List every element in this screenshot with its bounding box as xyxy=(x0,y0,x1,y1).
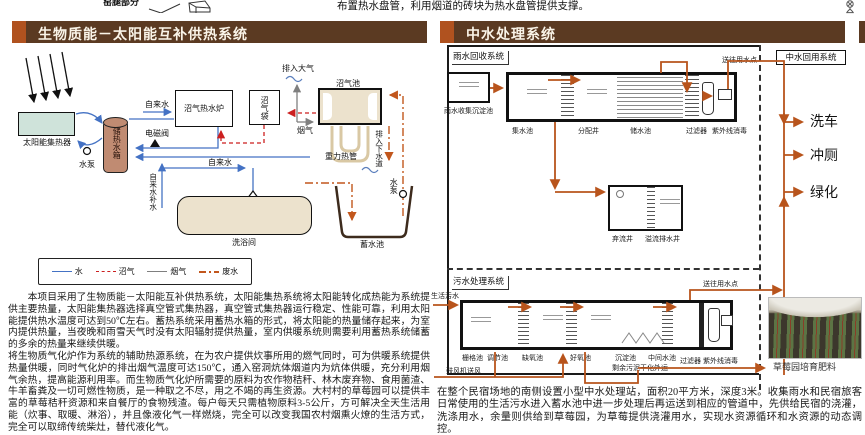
pump-right-icon xyxy=(400,191,407,198)
storage-pool-label: 蓄水池 xyxy=(360,240,384,249)
legend-biogas-line xyxy=(96,271,116,272)
legend-flue-line xyxy=(147,271,167,272)
legend-item-water: 水 xyxy=(52,267,83,276)
legend-water-line xyxy=(52,271,72,272)
flue-gas-label: 烟气 xyxy=(297,126,313,135)
left-body-text: 本项目采用了生物质能－太阳能互补供热系统，太阳能集热系统将太阳能转化成热能为系统… xyxy=(8,292,430,434)
titlebar-edge-sliver xyxy=(859,21,865,43)
biogas-boiler-label: 沼气热水炉 xyxy=(184,104,224,113)
left-section-titlebar: 生物质能－太阳能互补供热系统 xyxy=(12,21,427,43)
gravity-heat-pipe-label: 重力热管 xyxy=(325,152,357,161)
heating-system-flow-lines xyxy=(0,48,432,293)
solar-collector xyxy=(18,112,75,136)
biogas-bag-label: 沼气袋 xyxy=(260,96,269,120)
pump-left-label: 水泵 xyxy=(79,160,95,169)
biogas-digester xyxy=(318,88,382,125)
left-titlebar-accent xyxy=(12,21,26,43)
tap-water-mid-label: 自来水 xyxy=(208,158,232,167)
solenoid-valve-label: 电磁阀 xyxy=(145,129,169,138)
legend-item-flue: 烟气 xyxy=(147,267,186,276)
solenoid-valve-icon xyxy=(150,139,160,147)
right-section-title: 中水处理系统 xyxy=(466,24,556,44)
tap-water-top-label: 自来水 xyxy=(145,100,169,109)
exhaust-atmosphere-label: 排入大气 xyxy=(282,64,314,73)
legend-item-biogas: 沼气 xyxy=(96,267,135,276)
sprinkler-icon xyxy=(843,0,858,14)
kiln-sketch-icon xyxy=(148,0,182,13)
top-right-text: 布置热水盘管，利用烟道的砖块为热水盘管提供支撑。 xyxy=(337,1,589,13)
strawberry-field-photo xyxy=(768,297,862,359)
left-section-title: 生物质能－太阳能互补供热系统 xyxy=(38,24,248,44)
shower-room xyxy=(177,196,312,235)
biogas-bag: 沼气袋 xyxy=(249,90,280,125)
heat-storage-tank: 储热水箱 xyxy=(103,120,128,173)
kang-sketch-icon xyxy=(186,0,214,13)
digester-baffle-right xyxy=(368,93,377,120)
right-body-text: 在整个民宿场地的南侧设置小型中水处理站，面积20平方米，深度3米。收集雨水和民宿… xyxy=(437,387,862,435)
drain-sewer-label: 排入下水道 xyxy=(374,130,383,168)
digester-baffle-left xyxy=(323,93,332,120)
legend-box: 水 沼气 烟气 废水 xyxy=(38,258,252,285)
legend-item-waste: 废水 xyxy=(199,267,238,276)
biogas-boiler: 沼气热水炉 xyxy=(175,90,233,127)
right-titlebar-accent xyxy=(440,21,454,43)
tap-water-makeup-label: 自来水补水 xyxy=(148,173,157,211)
pump-left-icon xyxy=(84,148,91,155)
right-section-titlebar: 中水处理系统 xyxy=(440,21,845,43)
pump-right-label: 水泵 xyxy=(389,178,398,194)
photo-caption: 草莓园培育肥料 xyxy=(773,362,836,372)
solar-collector-label: 太阳能集热器 xyxy=(23,138,71,147)
shower-room-label: 洗浴间 xyxy=(232,238,256,247)
page-canvas: 窑腿部分 布置热水盘管，利用烟道的砖块为热水盘管提供支撑。 生物质能－太阳能互补… xyxy=(0,0,865,435)
left-paragraph-1: 本项目采用了生物质能－太阳能互补供热系统，太阳能集热系统将太阳能转化成热能为系统… xyxy=(8,292,430,351)
biogas-digester-label: 沼气池 xyxy=(336,79,360,88)
right-paragraph: 在整个民宿场地的南侧设置小型中水处理站，面积20平方米，深度3米。收集雨水和民宿… xyxy=(437,387,862,435)
top-left-caption: 窑腿部分 xyxy=(103,0,139,7)
heat-storage-tank-label: 储热水箱 xyxy=(112,127,121,159)
legend-waste-line xyxy=(199,271,219,273)
left-paragraph-2: 将生物质气化炉作为系统的辅助热源系统，在为农户提供炊事所用的燃气同时，可为供暖系… xyxy=(8,351,430,434)
